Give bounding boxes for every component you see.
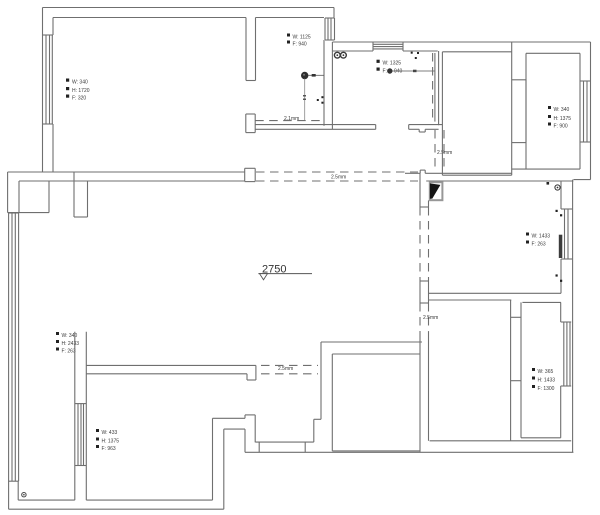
svg-text:2.5mm: 2.5mm bbox=[437, 150, 452, 156]
svg-text:F: 963: F: 963 bbox=[102, 446, 116, 452]
svg-text:H: 2433: H: 2433 bbox=[62, 341, 80, 347]
svg-text:H: 1375: H: 1375 bbox=[102, 439, 120, 445]
svg-text:F: 940: F: 940 bbox=[293, 42, 307, 48]
svg-text:F:: F: bbox=[383, 69, 387, 75]
svg-text:W: 1125: W: 1125 bbox=[293, 35, 311, 41]
svg-text:F: 320: F: 320 bbox=[72, 96, 86, 102]
svg-text:F: 900: F: 900 bbox=[554, 124, 568, 130]
svg-text:2.5mm: 2.5mm bbox=[331, 175, 346, 181]
svg-text:W: 1433: W: 1433 bbox=[532, 234, 551, 240]
svg-text:2.5mm: 2.5mm bbox=[423, 315, 438, 321]
svg-text:H: 1433: H: 1433 bbox=[538, 378, 556, 384]
svg-text:F: 263: F: 263 bbox=[62, 349, 76, 355]
svg-text:2.1mm: 2.1mm bbox=[284, 116, 299, 122]
svg-text:H: 1375: H: 1375 bbox=[554, 116, 572, 122]
svg-text:W: 340: W: 340 bbox=[554, 107, 570, 113]
svg-text:2.5mm: 2.5mm bbox=[278, 366, 293, 372]
svg-text:W: 433: W: 433 bbox=[102, 430, 118, 436]
svg-text:W: 1325: W: 1325 bbox=[383, 61, 402, 67]
svg-text:940: 940 bbox=[394, 69, 403, 75]
svg-text:F: 263: F: 263 bbox=[532, 242, 546, 248]
svg-text:F: 1300: F: 1300 bbox=[538, 386, 555, 392]
svg-text:W: 340: W: 340 bbox=[72, 80, 88, 86]
svg-text:W: 365: W: 365 bbox=[538, 369, 554, 375]
svg-text:H: 1720: H: 1720 bbox=[72, 88, 90, 94]
